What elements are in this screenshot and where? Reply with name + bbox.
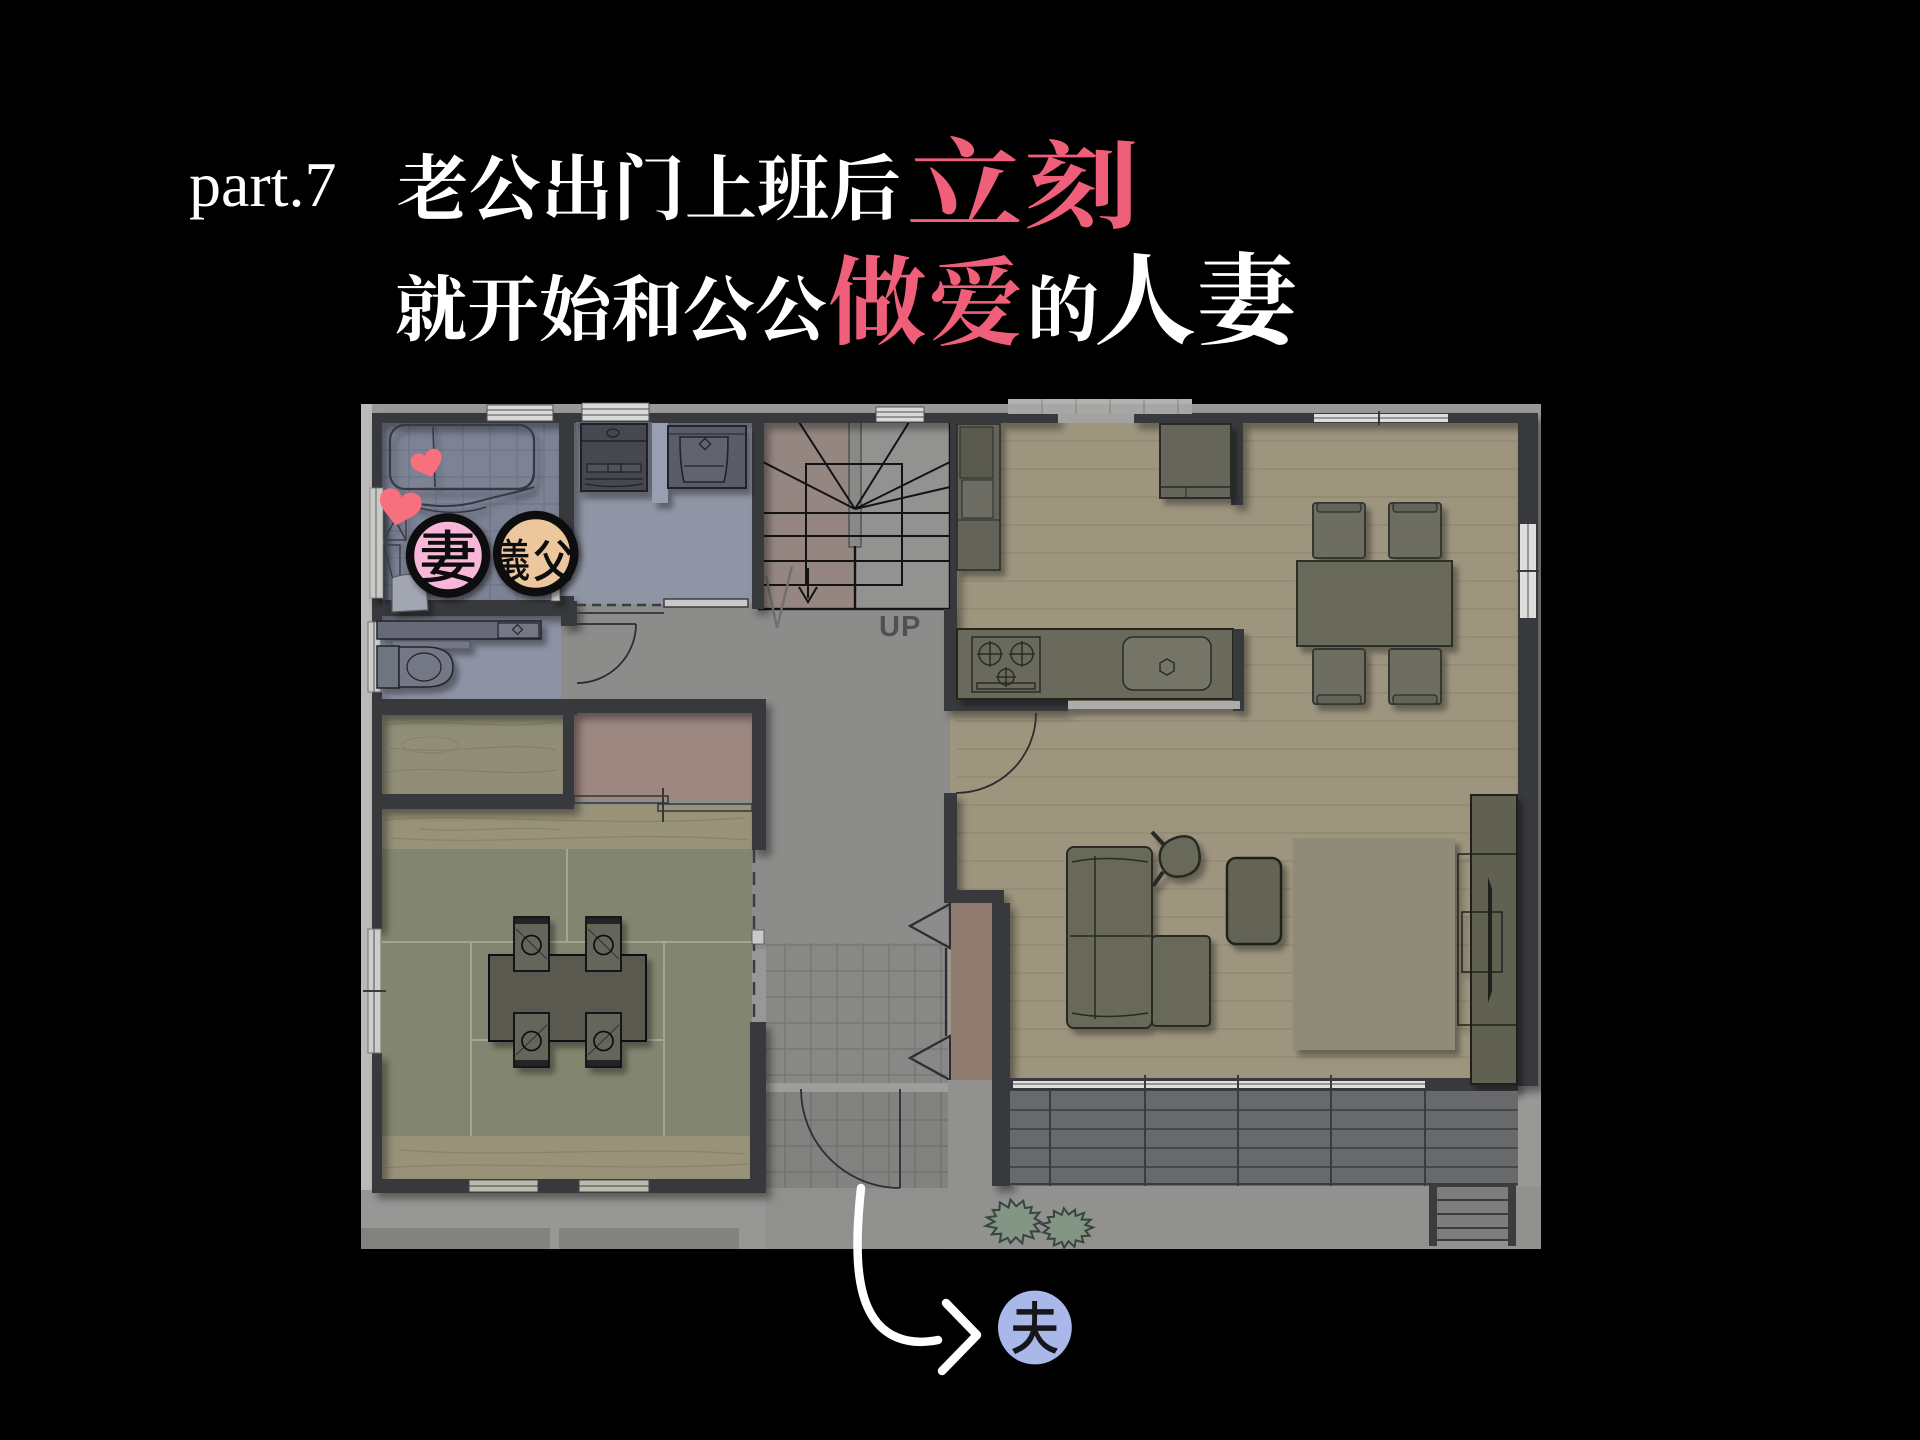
svg-text:UP: UP	[879, 611, 921, 643]
